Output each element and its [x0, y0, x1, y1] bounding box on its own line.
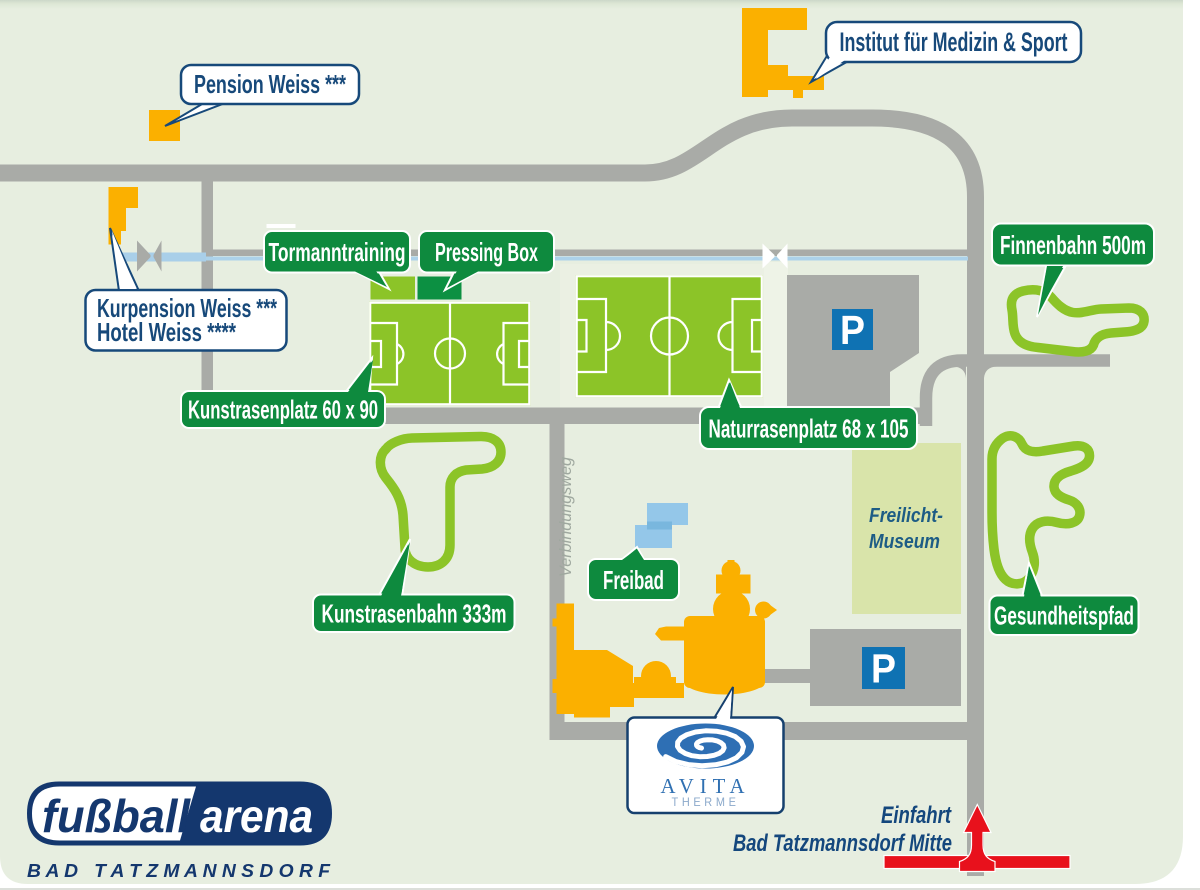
svg-text:Tormanntraining: Tormanntraining	[269, 237, 406, 267]
svg-text:Freibad: Freibad	[603, 565, 664, 595]
svg-text:Naturrasenplatz 68 x 105: Naturrasenplatz 68 x 105	[709, 414, 909, 444]
svg-text:Pressing Box: Pressing Box	[435, 237, 538, 267]
svg-text:Verbindungsweg: Verbindungsweg	[556, 456, 575, 577]
svg-text:THERME: THERME	[672, 795, 740, 809]
svg-text:Einfahrt: Einfahrt	[881, 802, 952, 829]
svg-text:Museum: Museum	[869, 531, 940, 553]
svg-text:P: P	[840, 307, 865, 353]
svg-text:Freilicht-: Freilicht-	[869, 505, 943, 527]
svg-text:Hotel Weiss ****: Hotel Weiss ****	[97, 317, 237, 347]
svg-text:P: P	[871, 646, 896, 692]
svg-text:Kunstrasenbahn 333m: Kunstrasenbahn 333m	[322, 599, 507, 629]
svg-text:Gesundheitspfad: Gesundheitspfad	[994, 601, 1134, 631]
svg-text:fußball: fußball	[42, 790, 191, 842]
svg-text:Bad Tatzmannsdorf Mitte: Bad Tatzmannsdorf Mitte	[733, 830, 952, 857]
svg-text:Institut für Medizin & Sport: Institut für Medizin & Sport	[840, 27, 1068, 57]
svg-text:Kunstrasenplatz 60 x 90: Kunstrasenplatz 60 x 90	[188, 395, 378, 425]
svg-text:Finnenbahn 500m: Finnenbahn 500m	[1000, 230, 1146, 260]
svg-text:Pension Weiss ***: Pension Weiss ***	[194, 69, 347, 99]
svg-text:B A D T A T Z M A N N S D O: B A D T A T Z M A N N S D O R F	[27, 861, 331, 881]
svg-text:arena: arena	[200, 790, 313, 842]
